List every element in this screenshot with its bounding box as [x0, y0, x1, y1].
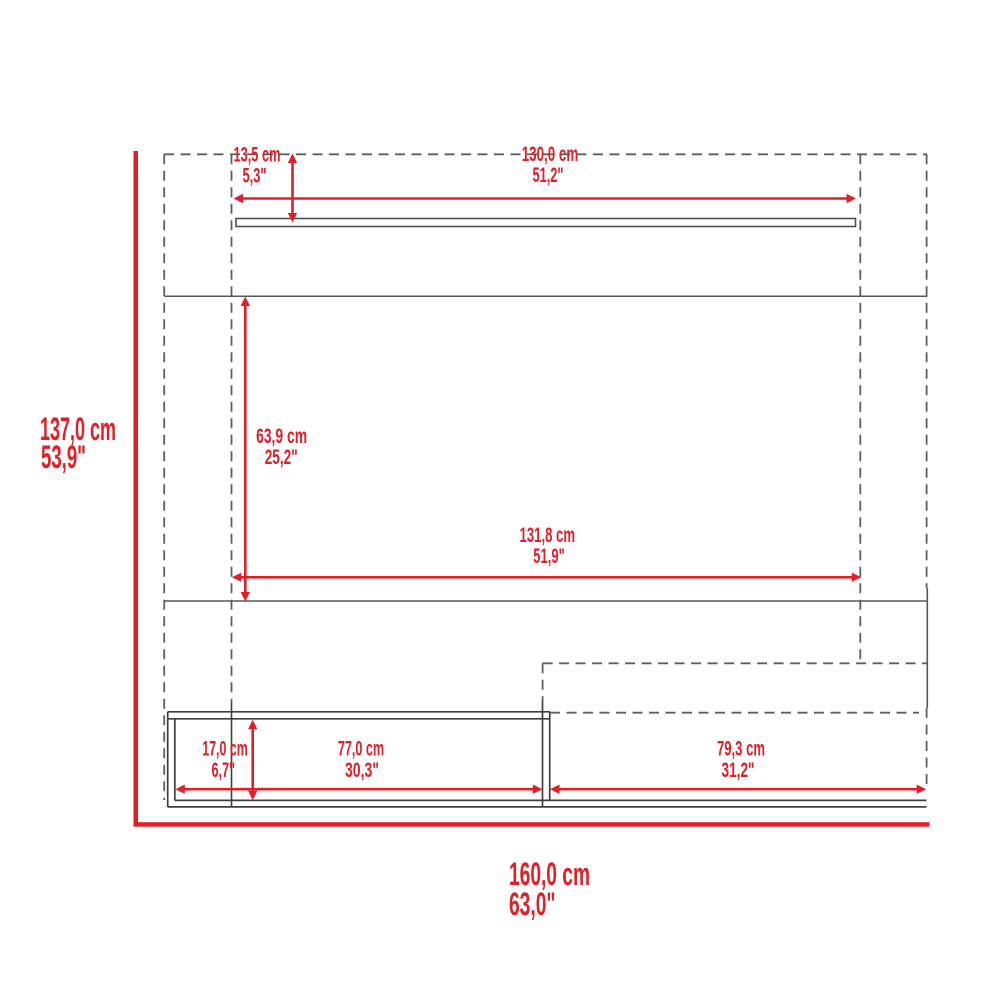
svg-text:25,2": 25,2" [265, 446, 298, 469]
svg-text:17,0 cm: 17,0 cm [202, 738, 248, 761]
svg-text:5,3": 5,3" [243, 165, 267, 188]
svg-text:6,7": 6,7" [211, 759, 235, 782]
svg-text:53,9": 53,9" [41, 439, 86, 475]
svg-text:30,3": 30,3" [345, 759, 379, 782]
svg-text:79,3 cm: 79,3 cm [717, 738, 765, 761]
svg-text:31,2": 31,2" [722, 759, 755, 782]
svg-text:130,0 cm: 130,0 cm [522, 143, 579, 166]
svg-text:63,9 cm: 63,9 cm [256, 425, 307, 448]
svg-text:13,5 cm: 13,5 cm [234, 144, 281, 167]
svg-text:51,9": 51,9" [533, 545, 565, 568]
svg-text:131,8 cm: 131,8 cm [520, 524, 576, 547]
svg-text:51,2": 51,2" [533, 164, 564, 187]
svg-text:77,0 cm: 77,0 cm [338, 738, 384, 761]
svg-text:63,0": 63,0" [509, 886, 556, 922]
